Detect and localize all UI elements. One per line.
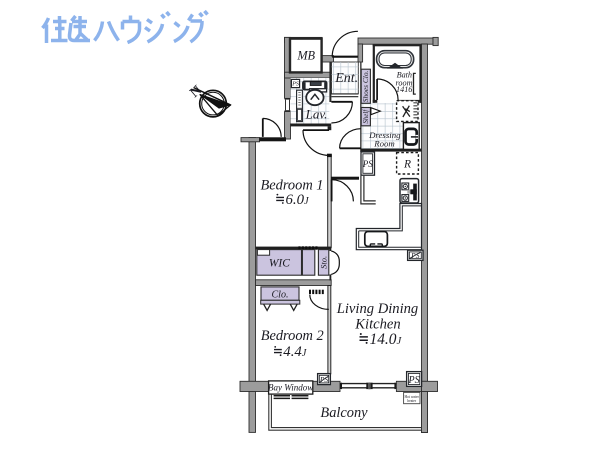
svg-text:PS: PS (408, 375, 420, 386)
svg-text:Lav.: Lav. (305, 107, 328, 122)
svg-text:R: R (403, 159, 411, 171)
svg-text:heater: heater (407, 399, 417, 403)
svg-text:Ent.: Ent. (334, 71, 358, 86)
svg-text:Clo.: Clo. (272, 289, 289, 300)
svg-text:Living Dining: Living Dining (336, 301, 418, 317)
svg-text:Bay Window: Bay Window (268, 383, 313, 393)
svg-text:PS: PS (291, 82, 299, 88)
svg-text:Balcony: Balcony (320, 405, 368, 421)
svg-text:MB: MB (296, 49, 315, 63)
svg-text:Shoes Clo.: Shoes Clo. (361, 70, 370, 102)
svg-text:Sto.: Sto. (319, 256, 329, 269)
svg-text:PS: PS (362, 159, 373, 169)
svg-text:Shelf: Shelf (363, 109, 370, 124)
svg-text:Room: Room (373, 138, 395, 148)
svg-text:1416: 1416 (396, 85, 413, 94)
svg-text:Bedroom 2: Bedroom 2 (261, 328, 324, 344)
svg-text:WIC: WIC (269, 258, 290, 270)
